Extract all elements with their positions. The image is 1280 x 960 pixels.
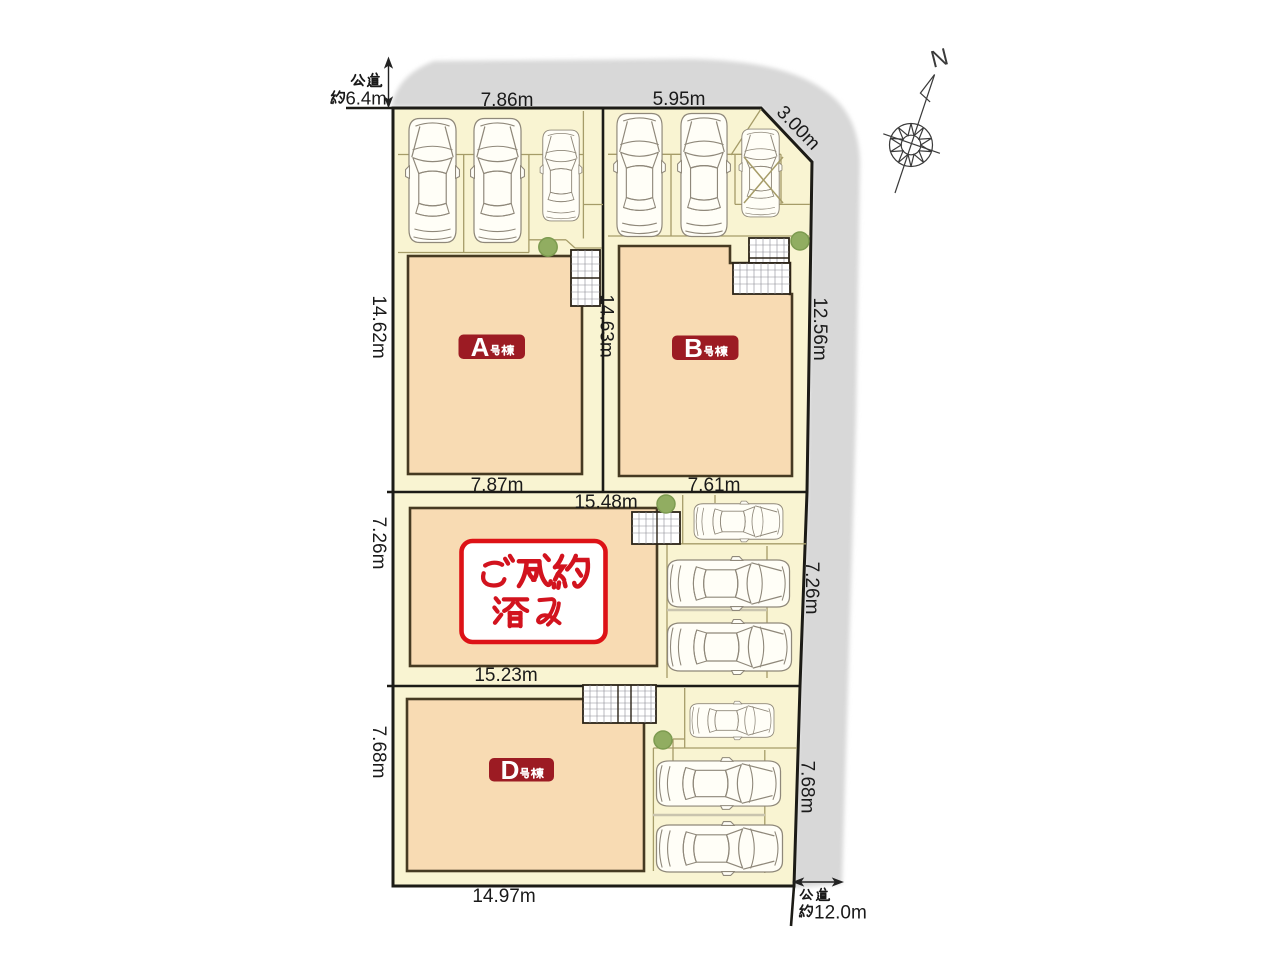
svg-text:D: D <box>501 755 520 785</box>
svg-text:7.61m: 7.61m <box>688 475 741 496</box>
svg-text:14.62m: 14.62m <box>368 295 389 358</box>
svg-text:7.26m: 7.26m <box>801 562 822 615</box>
svg-text:7.68m: 7.68m <box>368 726 389 779</box>
svg-text:5.95m: 5.95m <box>653 89 706 110</box>
svg-text:15.48m: 15.48m <box>574 492 637 513</box>
svg-text:N: N <box>928 43 951 73</box>
svg-text:6.4m: 6.4m <box>346 88 387 109</box>
svg-text:15.23m: 15.23m <box>474 665 537 686</box>
svg-text:14.97m: 14.97m <box>472 886 535 907</box>
svg-text:12.0m: 12.0m <box>814 903 867 924</box>
svg-text:7.68m: 7.68m <box>797 761 818 814</box>
svg-text:B: B <box>684 333 703 363</box>
svg-text:12.56m: 12.56m <box>809 297 830 360</box>
svg-text:7.86m: 7.86m <box>481 90 534 111</box>
svg-text:7.87m: 7.87m <box>471 475 524 496</box>
svg-text:7.26m: 7.26m <box>368 517 389 570</box>
svg-text:A: A <box>471 332 490 362</box>
svg-text:14.63m: 14.63m <box>596 294 617 357</box>
